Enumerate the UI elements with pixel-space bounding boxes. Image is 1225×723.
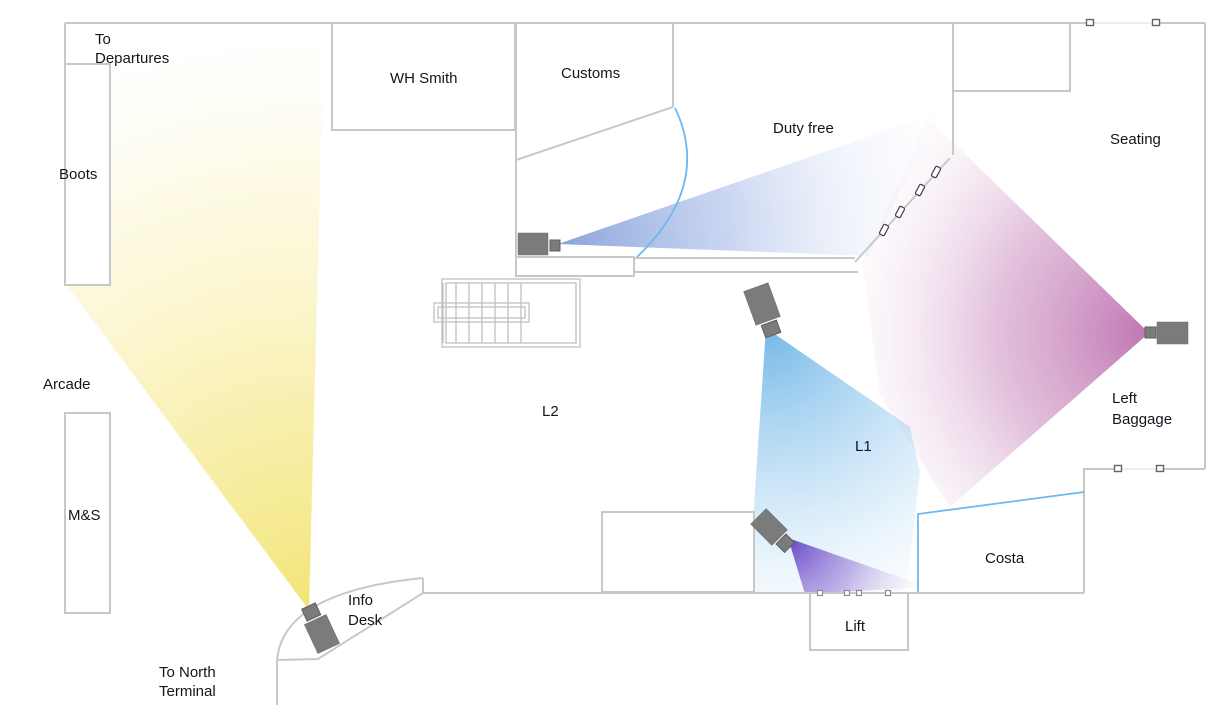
wall-handle[interactable] (1087, 20, 1094, 26)
camera-lens[interactable] (761, 320, 780, 338)
wall-handle[interactable] (1153, 20, 1160, 26)
room-unlabeled (602, 512, 754, 592)
wall-customs-diagonal (516, 107, 673, 160)
label-to-departures: To (95, 31, 111, 48)
label-left-baggage-2: Baggage (1112, 411, 1172, 428)
stairs (434, 279, 580, 347)
label-ms: M&S (68, 507, 101, 524)
label-l1: L1 (855, 438, 872, 455)
costa-boundary-line (918, 492, 1084, 592)
floor-plan-canvas: To Departures Boots Arcade M&S WH Smith … (0, 0, 1225, 723)
wall-handle[interactable] (1157, 466, 1164, 472)
label-boots: Boots (59, 166, 97, 183)
customs-camera[interactable] (518, 233, 560, 255)
camera-body[interactable] (518, 233, 548, 255)
label-to-departures-2: Departures (95, 50, 169, 67)
label-to-north-terminal-2: Terminal (159, 683, 216, 700)
label-arcade: Arcade (43, 376, 91, 393)
l1-camera[interactable] (744, 283, 786, 340)
info-desk-camera[interactable] (298, 601, 340, 654)
label-wh-smith: WH Smith (390, 70, 458, 87)
camera-lens[interactable] (550, 240, 560, 251)
wall-handle[interactable] (857, 591, 862, 596)
wall-handle[interactable] (886, 591, 891, 596)
camera-body[interactable] (744, 283, 781, 326)
label-l2: L2 (542, 403, 559, 420)
wall-handle[interactable] (845, 591, 850, 596)
wall-block (516, 257, 634, 276)
room-top-right (953, 23, 1070, 91)
label-lift: Lift (845, 618, 866, 635)
camera-lens[interactable] (1145, 327, 1156, 338)
label-costa: Costa (985, 550, 1025, 567)
wall-costa-corner (1084, 469, 1205, 593)
label-to-north-terminal: To North (159, 664, 216, 681)
label-customs: Customs (561, 65, 620, 82)
camera-body[interactable] (1157, 322, 1188, 344)
left-baggage-camera[interactable] (1145, 322, 1188, 344)
label-left-baggage: Left (1112, 390, 1138, 407)
label-duty-free: Duty free (773, 120, 834, 137)
wall-handle[interactable] (1115, 466, 1122, 472)
label-seating: Seating (1110, 131, 1161, 148)
label-info-desk: Info (348, 592, 373, 609)
label-info-desk-2: Desk (348, 612, 383, 629)
wall-handle[interactable] (818, 591, 823, 596)
